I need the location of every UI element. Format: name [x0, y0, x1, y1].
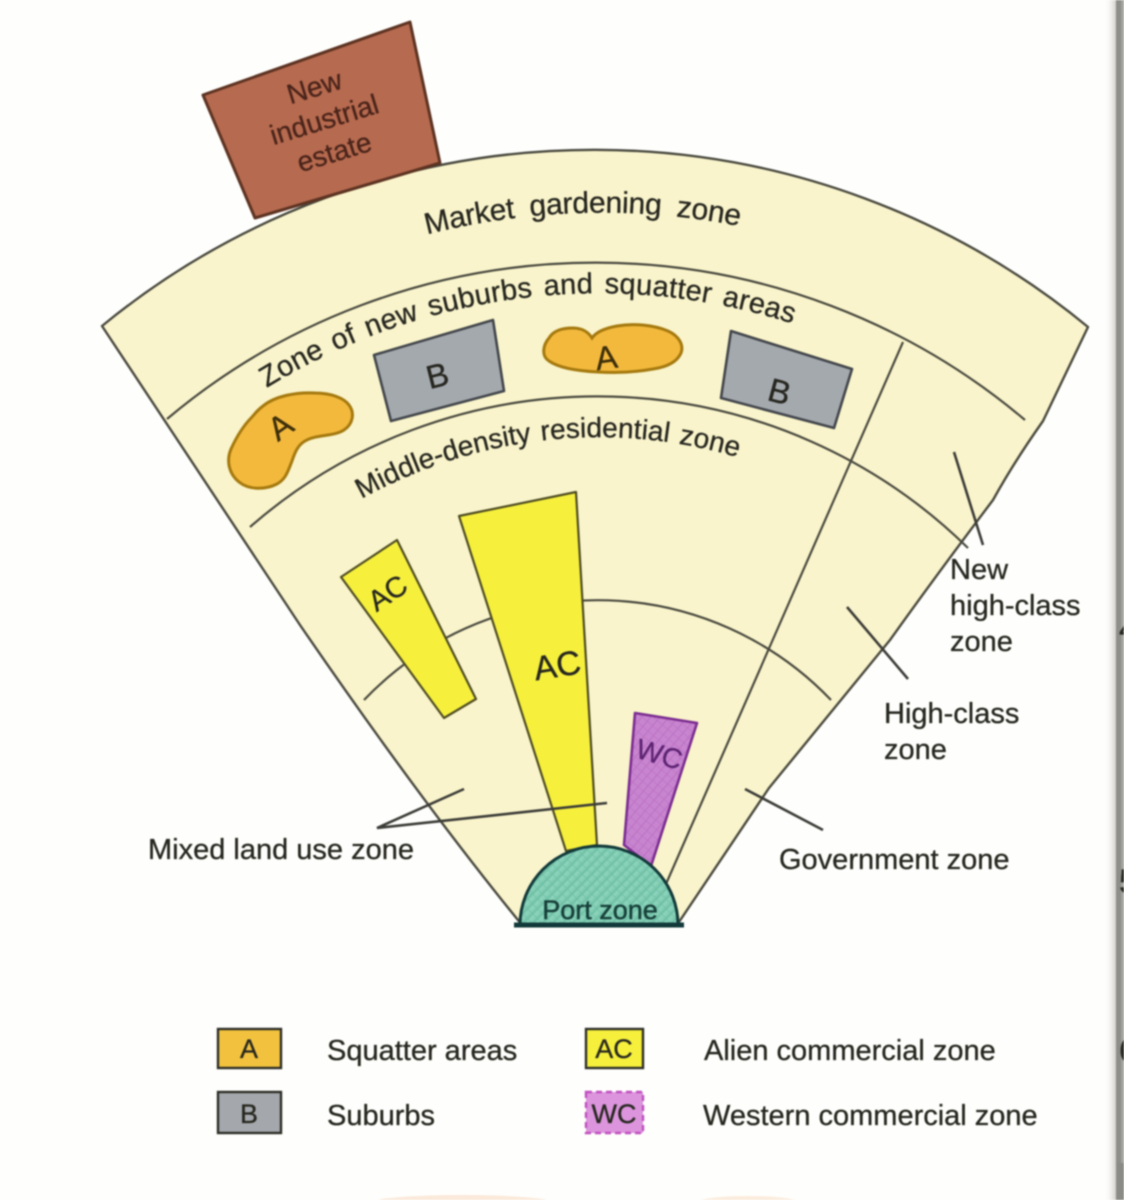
svg-text:6: 6 — [1119, 1032, 1124, 1070]
svg-text:high-class: high-class — [950, 590, 1081, 622]
svg-text:WC: WC — [592, 1099, 637, 1129]
svg-text:AC: AC — [531, 644, 584, 689]
svg-text:Squatter areas: Squatter areas — [327, 1035, 517, 1067]
svg-text:A: A — [240, 1034, 258, 1064]
svg-text:Suburbs: Suburbs — [327, 1100, 435, 1132]
svg-text:B: B — [240, 1099, 258, 1129]
svg-text:5: 5 — [1119, 863, 1124, 901]
svg-text:AC: AC — [595, 1034, 633, 1064]
svg-text:zone: zone — [950, 626, 1013, 658]
svg-text:Alien commercial zone: Alien commercial zone — [704, 1035, 996, 1067]
svg-text:Port zone: Port zone — [542, 895, 658, 925]
svg-text:High-class: High-class — [884, 698, 1019, 730]
svg-text:4: 4 — [1119, 610, 1124, 648]
svg-text:New: New — [950, 554, 1009, 586]
svg-text:zone: zone — [884, 734, 947, 766]
svg-text:Western commercial zone: Western commercial zone — [703, 1100, 1038, 1132]
svg-text:Government zone: Government zone — [779, 844, 1010, 876]
svg-text:Mixed land use zone: Mixed land use zone — [148, 834, 414, 866]
